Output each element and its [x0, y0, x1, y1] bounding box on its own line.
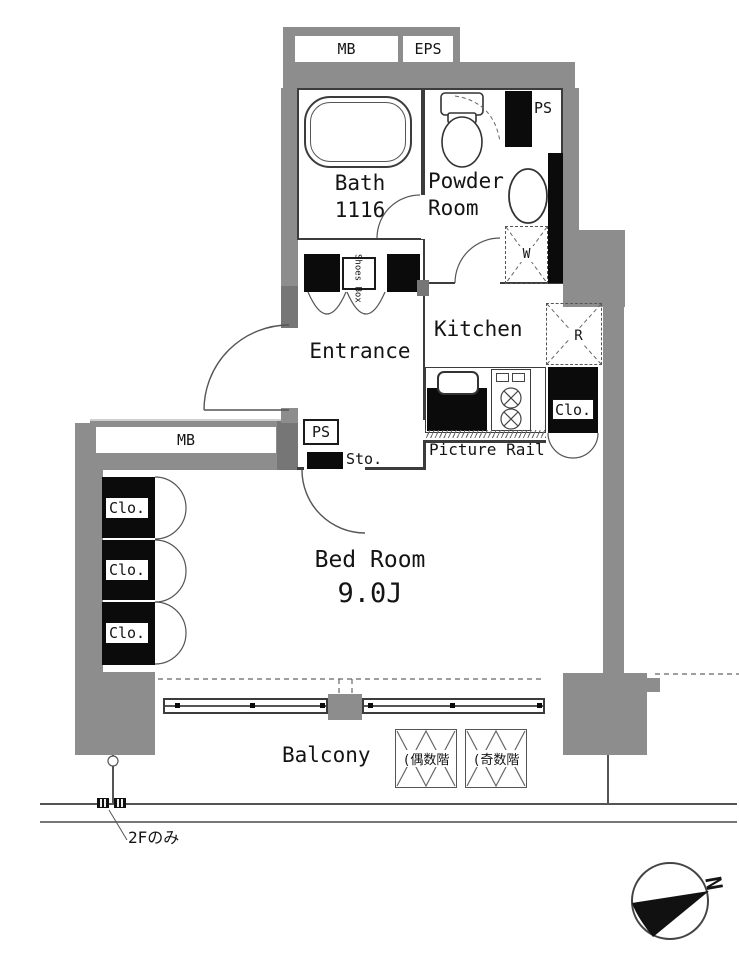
window-right-mark2 — [450, 703, 455, 708]
door-opening-powder — [455, 282, 500, 286]
label-hatch-even: (偶数階 — [396, 750, 456, 767]
window-left-track — [165, 705, 326, 707]
label-bath-size: 1116 — [297, 199, 423, 221]
label-closet-1: Clo. — [106, 498, 148, 518]
balcony-side-right — [607, 755, 609, 804]
shoes-cabinet-left — [304, 254, 340, 292]
wall-pier-kitchen — [417, 280, 429, 296]
label-balcony: Balcony — [282, 744, 371, 766]
partition-mark-left — [97, 798, 109, 808]
floor-note-leader — [109, 810, 127, 840]
bedroom-north-step — [423, 440, 426, 470]
label-bedroom-name: Bed Room — [250, 548, 490, 572]
window-left-mark1 — [175, 703, 180, 708]
window-left-mark2 — [250, 703, 255, 708]
label-mb-top: MB — [295, 36, 398, 62]
label-compass-north: N — [700, 875, 725, 892]
label-closet-kitchen: Clo. — [552, 399, 594, 420]
label-kitchen: Kitchen — [434, 318, 523, 340]
floor-plan: MB EPS PS Bath 1116 Powder Room W Shoes … — [0, 0, 739, 959]
label-bedroom-size: 9.0J — [250, 580, 490, 608]
kitchen-sink — [437, 371, 479, 395]
vanity-counter-strip — [548, 153, 563, 283]
pillar-bottom-right-ear — [645, 678, 660, 692]
bedroom-door-swing — [302, 470, 365, 533]
partition-mark-right — [114, 798, 126, 808]
window-left-mark3 — [320, 703, 325, 708]
wall-right-step — [563, 230, 625, 307]
door-jamb — [281, 408, 298, 423]
closet-door-swings — [155, 477, 186, 664]
sto-box — [307, 452, 343, 469]
label-ps-top: PS — [534, 101, 552, 117]
stove-grill-right — [512, 373, 525, 382]
front-door-swing — [204, 325, 289, 410]
bathtub-inner — [310, 102, 406, 162]
compass-needle — [632, 891, 709, 937]
label-floor-note: 2Fのみ — [128, 830, 179, 847]
window-mullion — [328, 694, 362, 720]
label-washer: W — [518, 246, 535, 262]
label-sto: Sto. — [346, 452, 382, 468]
label-fridge: R — [570, 328, 587, 344]
label-closet-2: Clo. — [106, 560, 148, 580]
label-closet-3: Clo. — [106, 623, 148, 643]
stove-grill-left — [496, 373, 509, 382]
label-entrance: Entrance — [290, 340, 430, 362]
wall-west-stub — [281, 286, 298, 328]
pillar-bottom-left — [75, 672, 155, 755]
ps-shaft-top — [505, 91, 532, 147]
label-bath-name: Bath — [297, 172, 423, 194]
label-picture-rail: Picture Rail — [429, 442, 545, 459]
kitchen-closet-door-swings — [548, 433, 598, 458]
balcony-outer-line — [40, 821, 737, 823]
compass — [632, 863, 709, 939]
balcony-edge-line — [40, 803, 737, 805]
label-ps-left: PS — [303, 419, 339, 445]
label-eps: EPS — [403, 36, 453, 62]
window-right-mark3 — [537, 703, 542, 708]
window-right-mark1 — [368, 703, 373, 708]
wall-band-endcap — [277, 421, 298, 470]
bedroom-north-wall-a — [297, 467, 304, 470]
label-powder-line1: Powder — [428, 170, 504, 192]
label-powder-line2: Room — [428, 197, 479, 219]
shoes-cabinet-right — [387, 254, 420, 292]
shoes-door-swings — [308, 292, 385, 314]
wall-top — [283, 62, 575, 90]
balcony-side-left — [112, 755, 114, 804]
picture-rail-hatch — [425, 430, 546, 438]
wall-right-upper — [563, 88, 579, 235]
label-mb-left: MB — [96, 427, 276, 453]
pillar-bottom-right — [563, 673, 647, 755]
wall-right-lower — [603, 305, 624, 675]
label-hatch-odd: (奇数階 — [466, 750, 526, 767]
label-shoes-box: Shoes Box — [352, 254, 361, 294]
